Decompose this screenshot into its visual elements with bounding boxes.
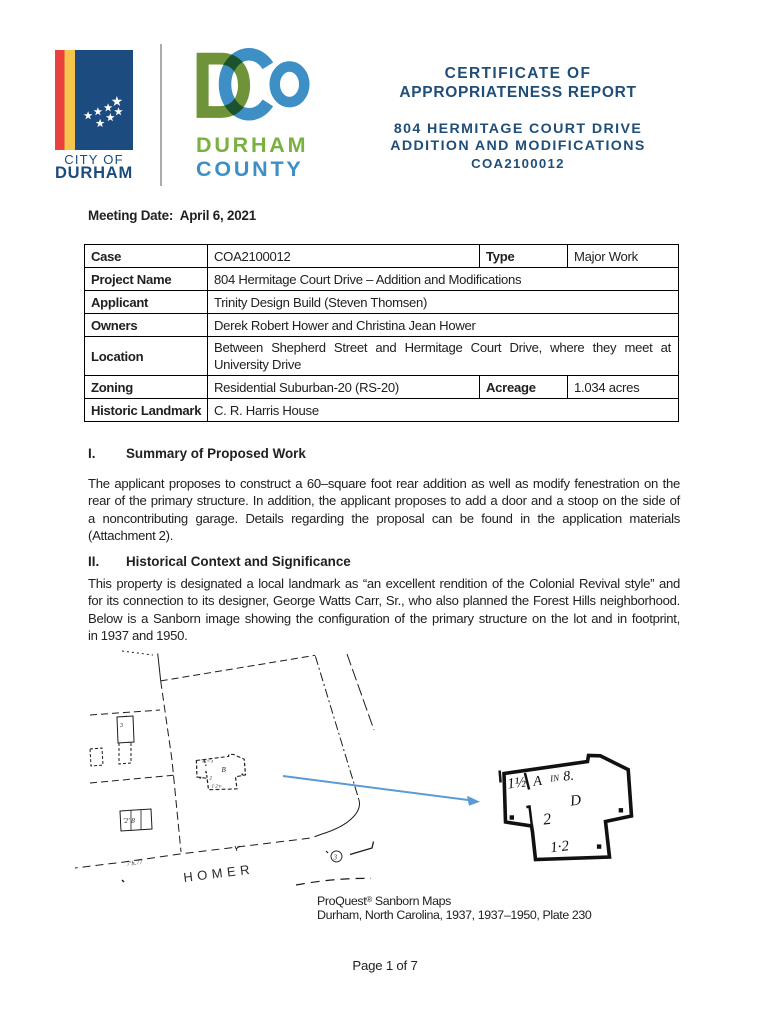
svg-text:8.: 8. [562, 769, 574, 785]
svg-text:1½: 1½ [506, 774, 527, 792]
svg-text:HOMER: HOMER [183, 861, 255, 885]
svg-text:B: B [222, 766, 227, 774]
svg-text:3: 3 [119, 723, 123, 729]
svg-text:A: A [531, 774, 543, 790]
svg-text:D: D [568, 792, 582, 809]
svg-text:′2′ 8: ′2′ 8 [123, 817, 135, 825]
svg-text:3: 3 [333, 854, 338, 862]
svg-text:′ʌ·′=′ʌ: ′ʌ·′=′ʌ [201, 760, 214, 765]
svg-text:2: 2 [542, 811, 552, 829]
svg-text:1·2: 1·2 [549, 838, 570, 856]
svg-text:7′h.77: 7′h.77 [126, 859, 144, 868]
svg-text:IN: IN [549, 772, 561, 783]
svg-text:1·2·ʋ: 1·2·ʋ [212, 785, 223, 790]
svg-text:2: 2 [210, 777, 213, 782]
